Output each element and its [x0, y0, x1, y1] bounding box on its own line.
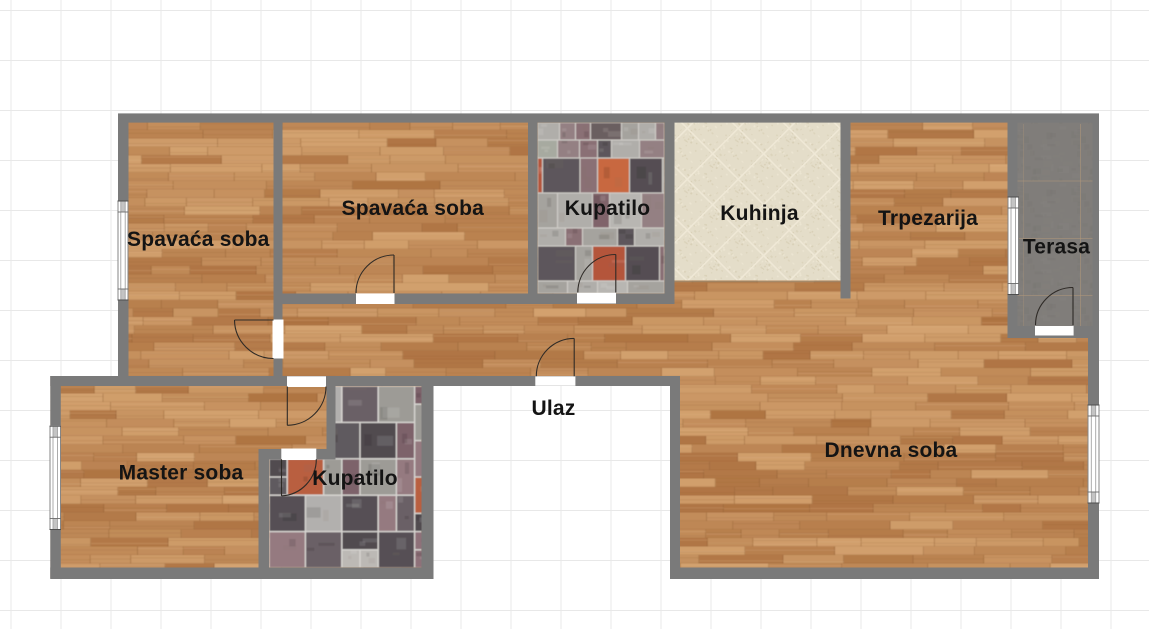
svg-text:Spavaća soba: Spavaća soba [127, 228, 270, 251]
svg-text:Trpezarija: Trpezarija [878, 207, 978, 230]
svg-text:Master soba: Master soba [119, 462, 244, 485]
svg-text:Kupatilo: Kupatilo [565, 197, 651, 220]
svg-text:Dnevna soba: Dnevna soba [825, 439, 958, 462]
svg-text:Spavaća soba: Spavaća soba [342, 197, 485, 220]
svg-text:Terasa: Terasa [1023, 236, 1090, 259]
svg-text:Ulaz: Ulaz [532, 397, 576, 420]
svg-text:Kuhinja: Kuhinja [720, 202, 799, 225]
svg-text:Kupatilo: Kupatilo [312, 467, 398, 490]
